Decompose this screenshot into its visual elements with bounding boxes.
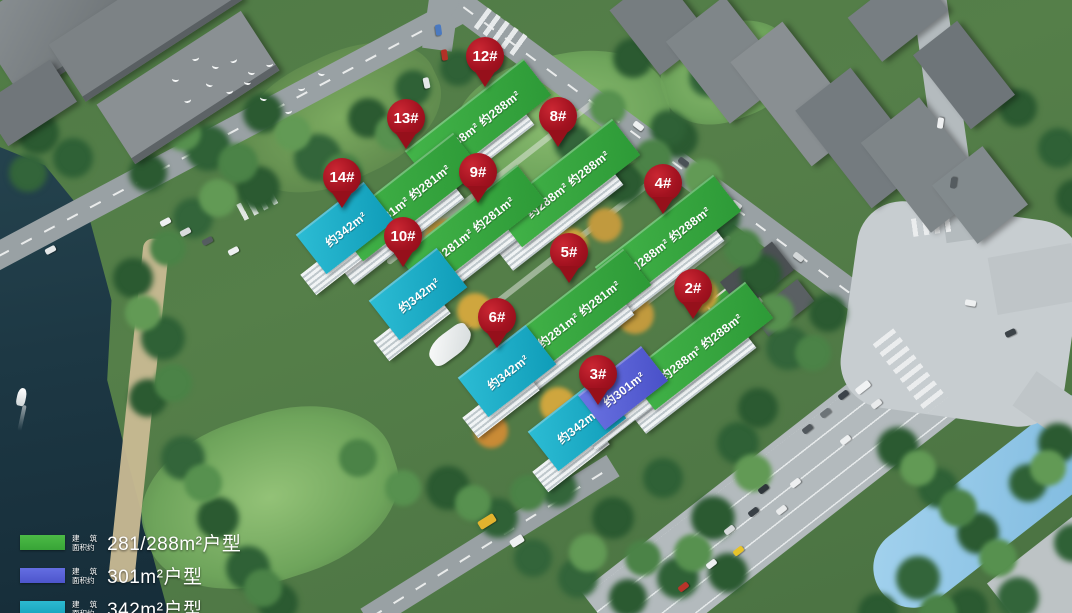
pin-6[interactable]: 6# [478, 298, 516, 348]
legend-prefix: 建 筑 面积约 [72, 567, 101, 585]
unit-type-legend: 建 筑 面积约 281/288m²户型 建 筑 面积约 301m²户型 建 筑 … [20, 529, 241, 613]
legend-label: 301m²户型 [107, 562, 202, 589]
car [159, 217, 172, 227]
pin-label: 3# [590, 366, 607, 383]
car [201, 236, 214, 246]
pin-tail [652, 197, 674, 214]
pin-label: 5# [561, 244, 578, 261]
pin-10[interactable]: 10# [384, 217, 422, 267]
crosswalk [236, 185, 282, 221]
pin-tail [682, 302, 704, 319]
pin-tail [547, 130, 569, 147]
pin-tail [395, 132, 417, 149]
pin-3[interactable]: 3# [579, 355, 617, 405]
legend-prefix-line2: 面积约 [72, 609, 101, 613]
legend-row-281-288: 建 筑 面积约 281/288m²户型 [20, 529, 241, 556]
pin-13[interactable]: 13# [387, 99, 425, 149]
pin-label: 12# [472, 48, 497, 65]
roof-area-text: 约281m² 约281m² [534, 276, 624, 351]
legend-label: 281/288m²户型 [107, 529, 241, 556]
pin-12[interactable]: 12# [466, 37, 504, 87]
pin-label: 14# [329, 169, 354, 186]
pin-5[interactable]: 5# [550, 233, 588, 283]
pin-9[interactable]: 9# [459, 153, 497, 203]
aerial-site-plan: 约288m² 约288m² 约281m² 约281m² 约288m² 约288m… [0, 0, 1072, 613]
legend-prefix-line1: 建 筑 [72, 600, 101, 609]
legend-prefix-line1: 建 筑 [72, 567, 101, 576]
legend-row-301: 建 筑 面积约 301m²户型 [20, 562, 241, 589]
pin-label: 10# [390, 228, 415, 245]
pin-tail [558, 266, 580, 283]
car [227, 246, 240, 256]
road-south [360, 455, 619, 613]
legend-prefix-line1: 建 筑 [72, 534, 101, 543]
pin-tail [486, 331, 508, 348]
pin-label: 13# [393, 110, 418, 127]
pin-tail [474, 70, 496, 87]
pin-label: 6# [489, 309, 506, 326]
roof-area-text: 约288m² 约288m² [656, 309, 746, 384]
pin-2[interactable]: 2# [674, 269, 712, 319]
legend-swatch-cyan [20, 601, 65, 613]
roof-area-text: 约342m² [394, 273, 443, 316]
car [179, 227, 192, 237]
pin-4[interactable]: 4# [644, 164, 682, 214]
roof-area-text: 约342m² [321, 207, 370, 250]
legend-label: 342m²户型 [107, 595, 202, 613]
pin-label: 2# [685, 280, 702, 297]
pin-tail [392, 250, 414, 267]
roof-area-text: 约342m² [483, 350, 532, 393]
legend-prefix-line2: 面积约 [72, 576, 101, 585]
pin-14[interactable]: 14# [323, 158, 361, 208]
legend-prefix: 建 筑 面积约 [72, 600, 101, 613]
legend-prefix: 建 筑 面积约 [72, 534, 101, 552]
legend-prefix-line2: 面积约 [72, 543, 101, 552]
pin-8[interactable]: 8# [539, 97, 577, 147]
legend-swatch-green [20, 535, 65, 550]
pin-tail [587, 388, 609, 405]
pin-label: 9# [470, 164, 487, 181]
pin-tail [331, 191, 353, 208]
pin-label: 8# [550, 108, 567, 125]
legend-swatch-blue [20, 568, 65, 583]
pin-tail [467, 186, 489, 203]
legend-row-342: 建 筑 面积约 342m²户型 [20, 595, 241, 613]
pin-label: 4# [655, 175, 672, 192]
